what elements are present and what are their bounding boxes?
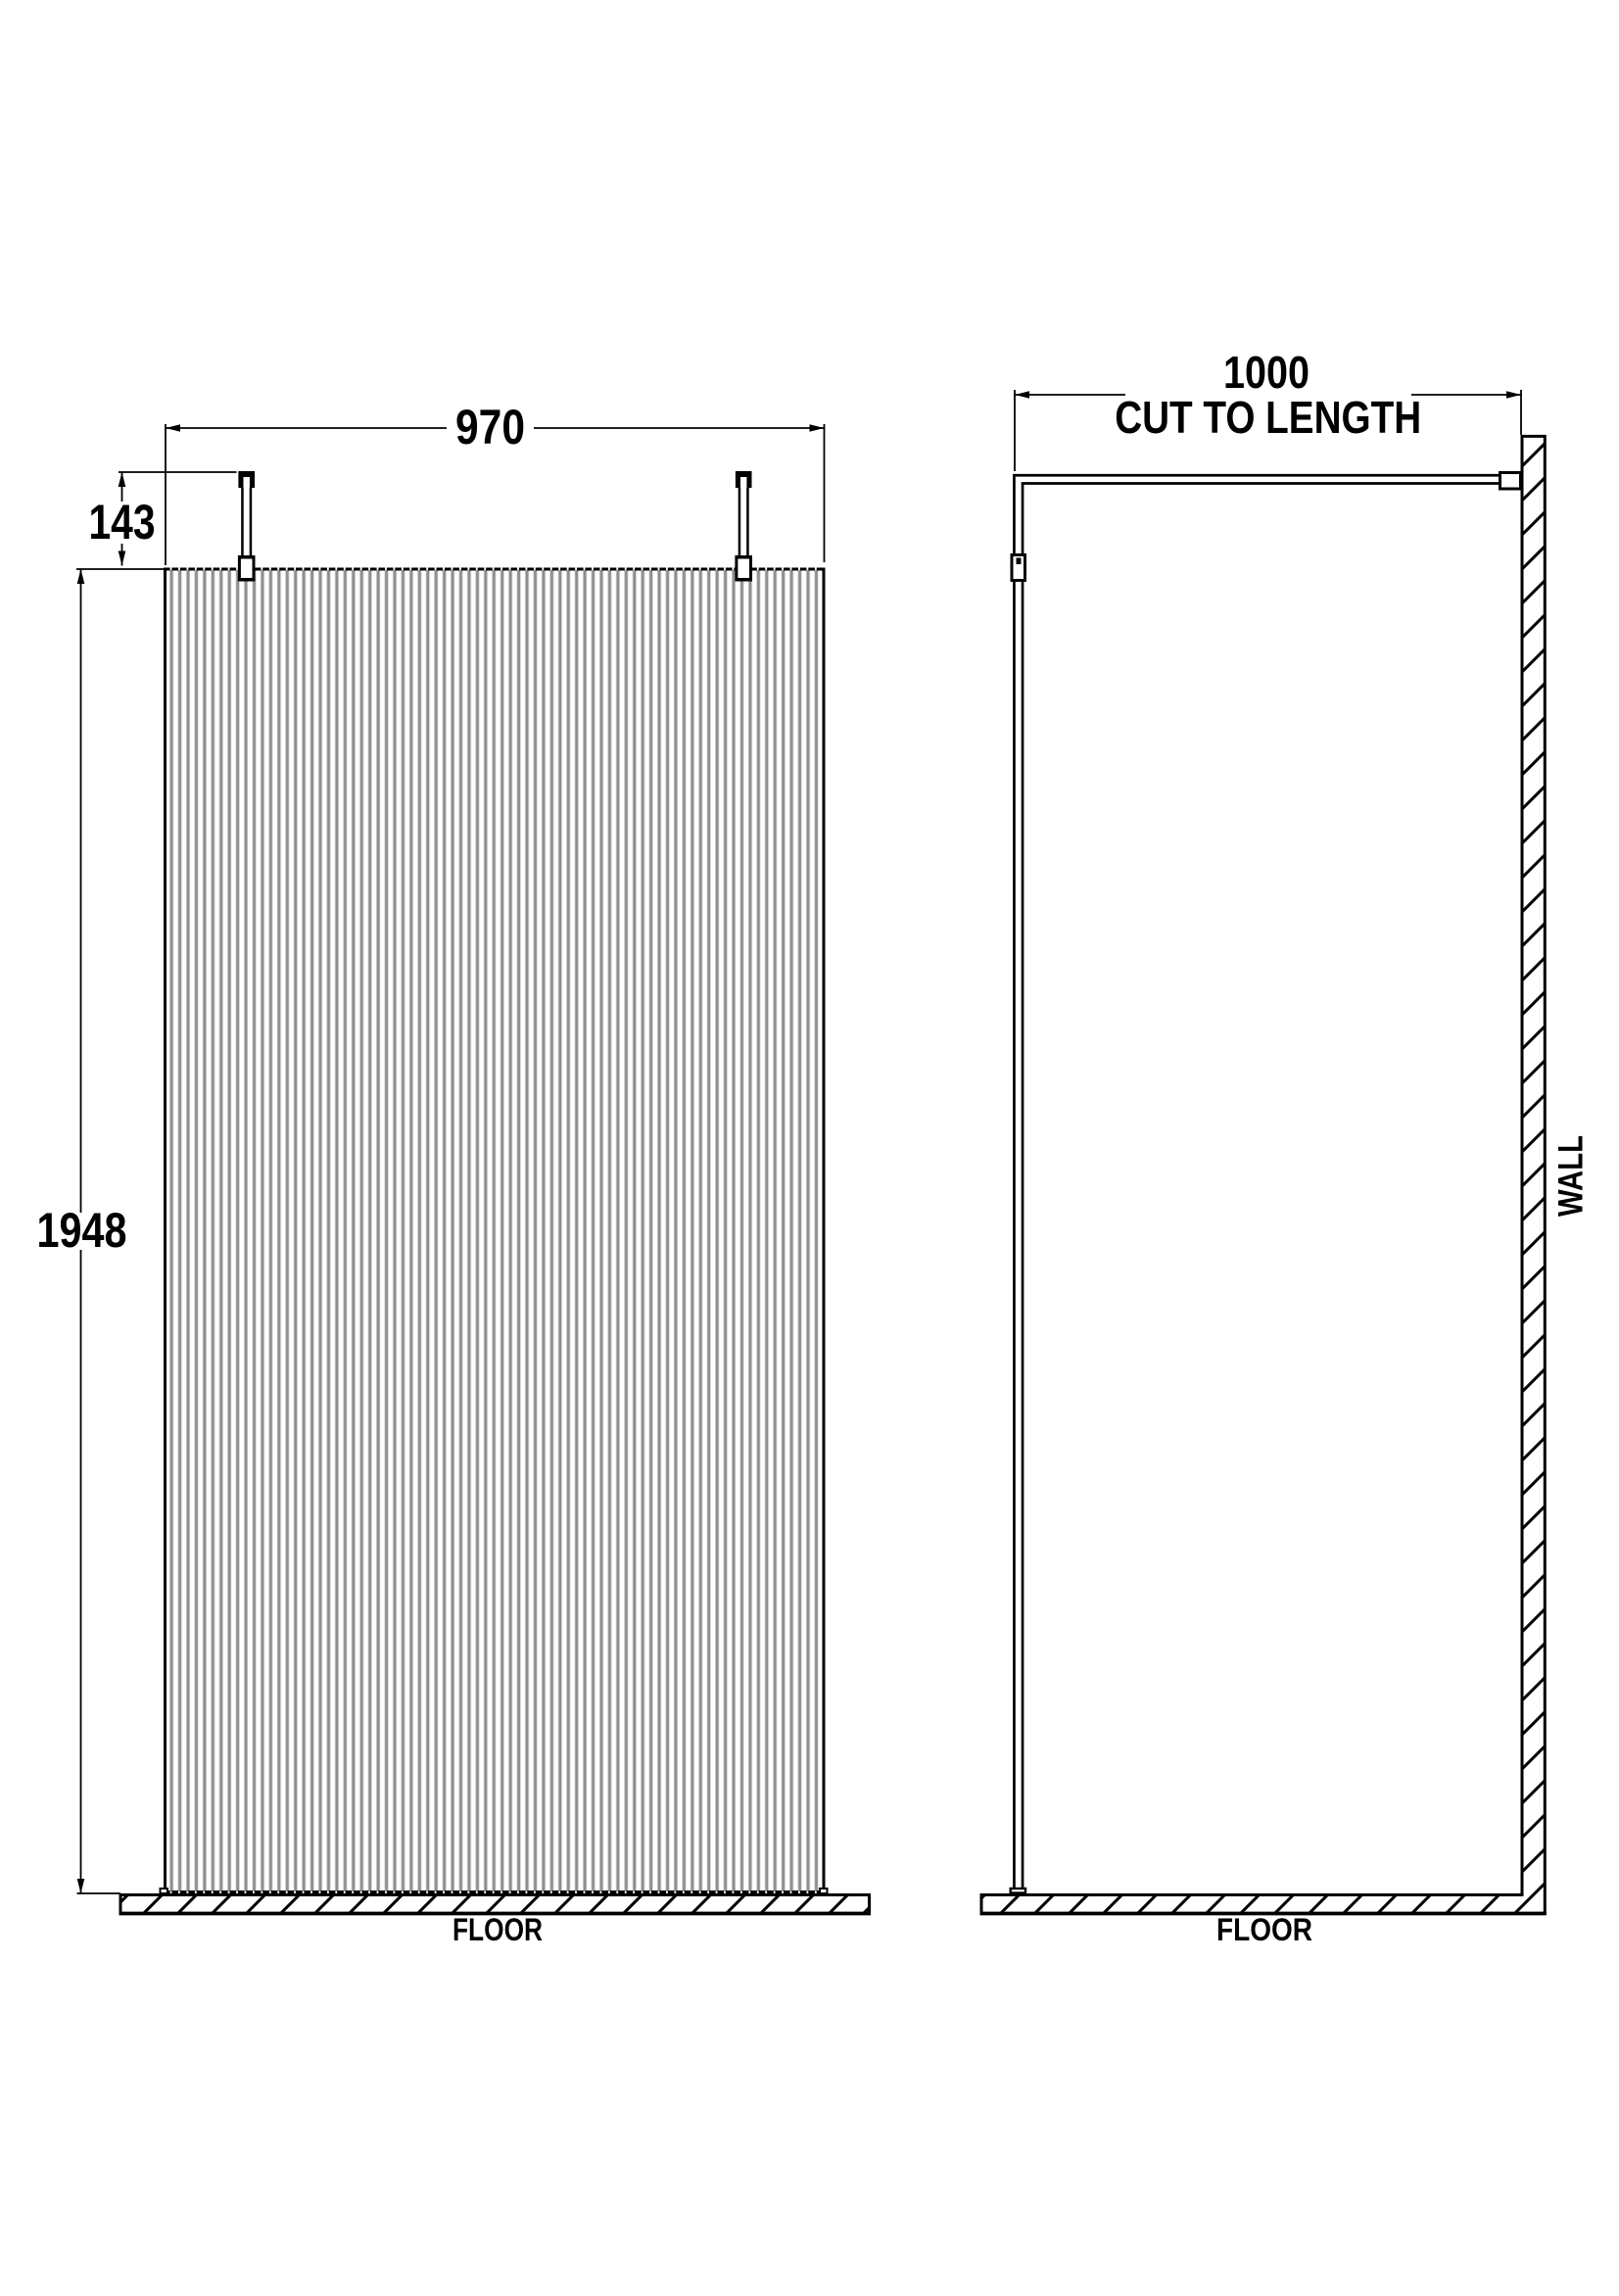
svg-text:1948: 1948	[37, 1203, 127, 1258]
svg-text:143: 143	[89, 494, 156, 550]
svg-text:FLOOR: FLOOR	[452, 1912, 543, 1947]
svg-text:CUT TO LENGTH: CUT TO LENGTH	[1115, 392, 1421, 443]
svg-text:FLOOR: FLOOR	[1216, 1912, 1312, 1947]
svg-text:WALL: WALL	[1551, 1135, 1590, 1217]
svg-text:970: 970	[455, 399, 525, 454]
svg-text:1000: 1000	[1223, 347, 1309, 398]
